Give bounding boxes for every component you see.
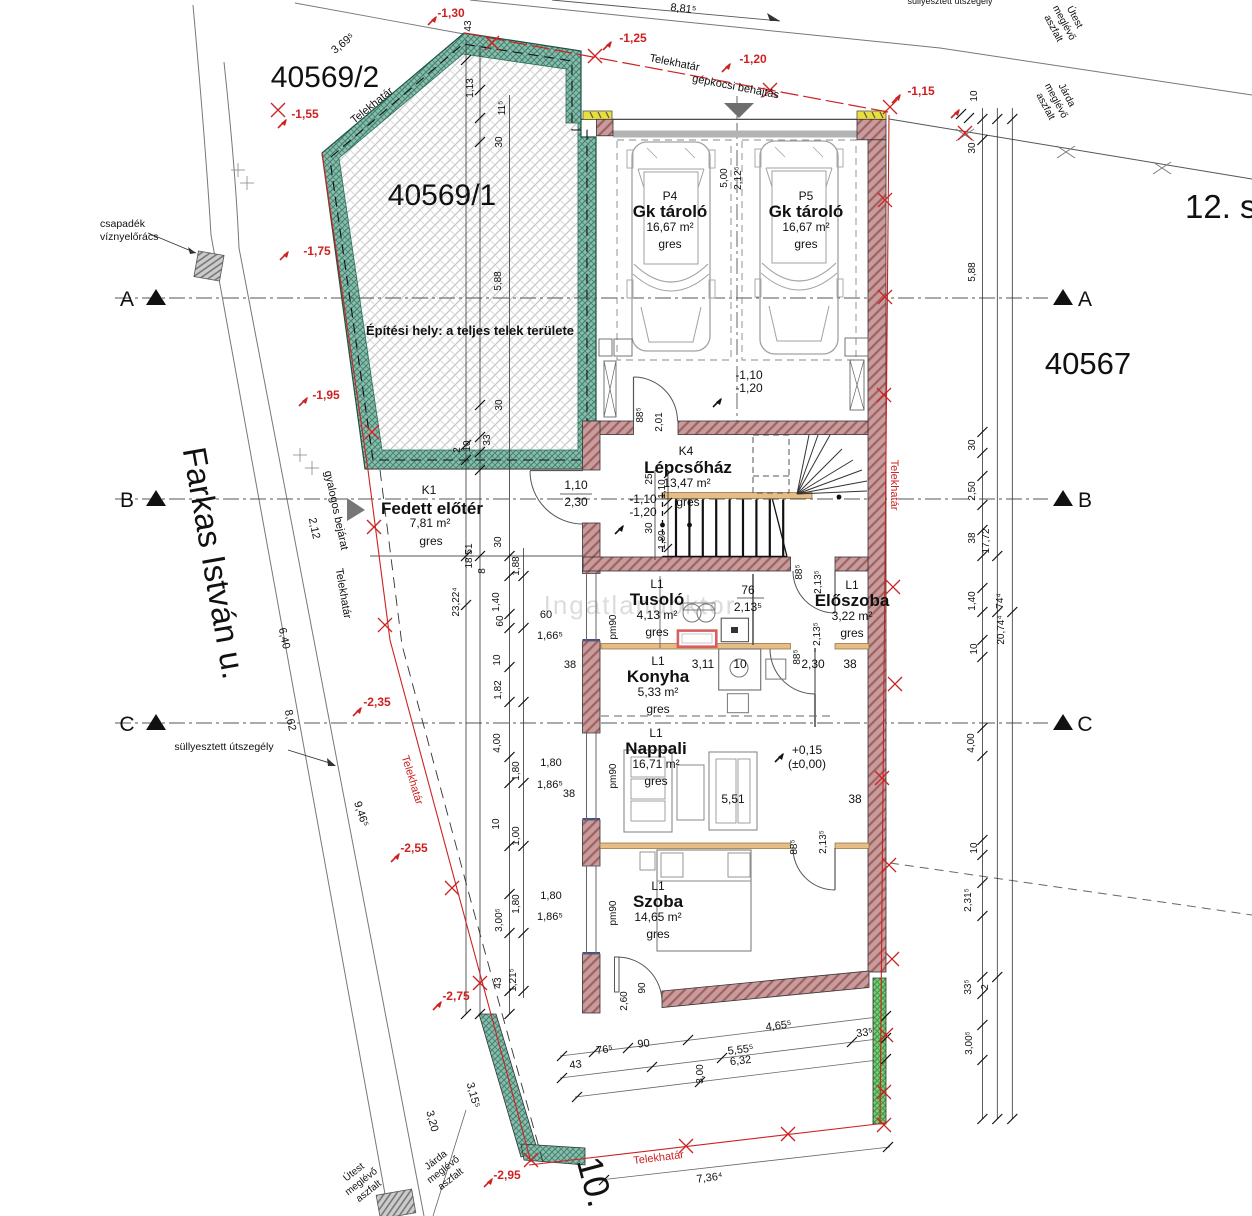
svg-text:pm90: pm90 bbox=[608, 763, 619, 788]
svg-text:1,80: 1,80 bbox=[657, 530, 668, 550]
svg-text:5,88: 5,88 bbox=[967, 262, 978, 282]
svg-text:11⁵: 11⁵ bbox=[497, 101, 508, 116]
svg-text:10: 10 bbox=[969, 90, 980, 102]
svg-text:2,60: 2,60 bbox=[619, 991, 630, 1011]
svg-text:76⁵: 76⁵ bbox=[596, 1043, 614, 1057]
svg-text:gres: gres bbox=[644, 774, 667, 788]
svg-text:60: 60 bbox=[495, 615, 506, 627]
svg-text:8: 8 bbox=[477, 568, 488, 574]
svg-text:gres: gres bbox=[840, 626, 863, 640]
svg-text:30: 30 bbox=[493, 536, 504, 548]
svg-text:88⁵: 88⁵ bbox=[794, 564, 805, 579]
svg-text:Gk tároló: Gk tároló bbox=[633, 202, 708, 221]
svg-text:B: B bbox=[1078, 489, 1092, 512]
svg-text:7,81 m²: 7,81 m² bbox=[410, 516, 451, 530]
svg-text:76: 76 bbox=[741, 583, 755, 597]
svg-text:10: 10 bbox=[969, 842, 980, 854]
svg-text:gres: gres bbox=[658, 237, 681, 251]
svg-text:-1,20: -1,20 bbox=[739, 52, 767, 66]
svg-text:38: 38 bbox=[843, 657, 857, 671]
svg-text:2,30: 2,30 bbox=[564, 495, 588, 509]
svg-text:-2,75: -2,75 bbox=[442, 989, 470, 1003]
svg-text:17,72: 17,72 bbox=[981, 528, 992, 553]
svg-text:1,80: 1,80 bbox=[540, 890, 561, 902]
svg-text:38: 38 bbox=[967, 532, 978, 544]
svg-text:2,50: 2,50 bbox=[967, 481, 978, 501]
svg-text:P5: P5 bbox=[799, 189, 814, 203]
svg-text:10: 10 bbox=[491, 818, 502, 830]
svg-text:B: B bbox=[120, 489, 134, 512]
svg-text:1,66⁵: 1,66⁵ bbox=[537, 630, 563, 642]
svg-text:1,80: 1,80 bbox=[511, 761, 522, 781]
svg-text:-1,15: -1,15 bbox=[907, 84, 935, 98]
svg-text:1,82: 1,82 bbox=[493, 680, 504, 700]
svg-text:-1,25: -1,25 bbox=[619, 31, 647, 45]
svg-text:38: 38 bbox=[848, 792, 862, 806]
svg-text:A: A bbox=[1078, 288, 1092, 311]
svg-text:1,86⁵: 1,86⁵ bbox=[537, 779, 563, 791]
svg-text:30: 30 bbox=[967, 142, 978, 154]
svg-text:38: 38 bbox=[564, 659, 576, 671]
svg-text:Lépcsőház: Lépcsőház bbox=[644, 458, 732, 477]
svg-text:1,80: 1,80 bbox=[540, 757, 561, 769]
svg-text:20,74⁴: 20,74⁴ bbox=[996, 615, 1007, 644]
svg-text:L1: L1 bbox=[845, 578, 859, 592]
svg-text:-1,75: -1,75 bbox=[303, 244, 331, 258]
svg-text:14,65 m²: 14,65 m² bbox=[634, 910, 681, 924]
svg-text:L1: L1 bbox=[650, 577, 664, 591]
svg-text:40569/2: 40569/2 bbox=[271, 61, 379, 94]
svg-text:4,00: 4,00 bbox=[492, 733, 503, 753]
svg-text:gres: gres bbox=[646, 702, 669, 716]
svg-text:88⁵: 88⁵ bbox=[789, 839, 800, 854]
svg-text:P4: P4 bbox=[663, 189, 678, 203]
svg-text:süllyesztett útszegély: süllyesztett útszegély bbox=[907, 0, 993, 6]
svg-text:5,51: 5,51 bbox=[721, 792, 745, 806]
svg-text:Tusoló: Tusoló bbox=[630, 590, 684, 609]
svg-text:gres: gres bbox=[419, 534, 442, 548]
svg-text:K1: K1 bbox=[422, 483, 437, 497]
svg-text:1,88: 1,88 bbox=[511, 556, 522, 576]
svg-text:L1: L1 bbox=[651, 879, 665, 893]
svg-text:38: 38 bbox=[563, 788, 575, 800]
svg-text:23,22⁴: 23,22⁴ bbox=[451, 587, 462, 616]
svg-text:2,30: 2,30 bbox=[801, 657, 825, 671]
svg-text:3,22 m²: 3,22 m² bbox=[832, 609, 873, 623]
svg-text:13,47 m²: 13,47 m² bbox=[663, 476, 710, 490]
svg-text:3,00⁵: 3,00⁵ bbox=[494, 908, 505, 932]
svg-text:-1,10: -1,10 bbox=[629, 492, 657, 506]
svg-text:Telekhatár: Telekhatár bbox=[888, 460, 900, 511]
svg-text:L1: L1 bbox=[651, 654, 665, 668]
svg-text:30: 30 bbox=[494, 399, 505, 411]
svg-text:1,21⁵: 1,21⁵ bbox=[508, 968, 519, 992]
svg-text:1,40: 1,40 bbox=[491, 592, 502, 612]
svg-text:10: 10 bbox=[492, 654, 503, 666]
svg-text:88⁵: 88⁵ bbox=[792, 649, 803, 664]
svg-text:K4: K4 bbox=[679, 444, 694, 458]
svg-text:1,86⁵: 1,86⁵ bbox=[537, 911, 563, 923]
svg-text:pm90: pm90 bbox=[608, 900, 619, 925]
svg-text:-1,55: -1,55 bbox=[291, 107, 319, 121]
svg-text:30: 30 bbox=[494, 136, 505, 148]
svg-text:3,11: 3,11 bbox=[692, 657, 715, 671]
svg-text:gres: gres bbox=[645, 625, 668, 639]
svg-text:88⁵: 88⁵ bbox=[635, 407, 646, 422]
svg-text:C: C bbox=[119, 713, 134, 736]
svg-text:1,40: 1,40 bbox=[967, 591, 978, 611]
svg-text:74⁴: 74⁴ bbox=[995, 593, 1006, 608]
svg-text:40569/1: 40569/1 bbox=[388, 179, 496, 212]
svg-text:Építési hely: a teljes telek t: Építési hely: a teljes telek területe bbox=[366, 323, 574, 338]
svg-text:Konyha: Konyha bbox=[627, 667, 690, 686]
svg-text:1,13: 1,13 bbox=[465, 78, 476, 98]
svg-text:-1,95: -1,95 bbox=[312, 388, 340, 402]
svg-text:1,10: 1,10 bbox=[564, 478, 588, 492]
svg-text:16,67 m²: 16,67 m² bbox=[646, 220, 693, 234]
svg-text:5,33 m²: 5,33 m² bbox=[638, 685, 679, 699]
svg-text:90: 90 bbox=[637, 982, 648, 994]
svg-text:Gk tároló: Gk tároló bbox=[769, 202, 844, 221]
svg-text:Előszoba: Előszoba bbox=[815, 591, 890, 610]
svg-text:2,31⁵: 2,31⁵ bbox=[963, 888, 974, 912]
svg-text:Szoba: Szoba bbox=[633, 892, 684, 911]
svg-text:pm90: pm90 bbox=[608, 614, 619, 639]
svg-text:33: 33 bbox=[482, 434, 493, 446]
svg-text:25: 25 bbox=[644, 473, 655, 485]
svg-text:-2,95: -2,95 bbox=[493, 1168, 521, 1182]
svg-text:gres: gres bbox=[676, 495, 699, 509]
svg-text:-1,30: -1,30 bbox=[437, 6, 465, 20]
svg-text:(±0,00): (±0,00) bbox=[788, 757, 826, 771]
svg-text:víznyelőrács: víznyelőrács bbox=[100, 231, 158, 243]
svg-text:10: 10 bbox=[969, 643, 980, 655]
svg-text:2,13⁵: 2,13⁵ bbox=[734, 600, 762, 614]
svg-text:90: 90 bbox=[637, 1037, 651, 1050]
svg-text:-2,55: -2,55 bbox=[400, 841, 428, 855]
svg-text:33⁵: 33⁵ bbox=[856, 1026, 874, 1040]
svg-text:43: 43 bbox=[463, 20, 474, 32]
svg-text:4,00: 4,00 bbox=[966, 733, 977, 753]
svg-text:16,67 m²: 16,67 m² bbox=[782, 220, 829, 234]
svg-text:1,00: 1,00 bbox=[511, 826, 522, 846]
svg-text:10: 10 bbox=[462, 440, 473, 452]
svg-text:10: 10 bbox=[733, 657, 747, 671]
svg-text:2,13⁵: 2,13⁵ bbox=[812, 622, 823, 646]
svg-text:+0,15: +0,15 bbox=[792, 743, 823, 757]
svg-text:2,13⁵: 2,13⁵ bbox=[818, 830, 829, 854]
svg-text:2,12⁵: 2,12⁵ bbox=[733, 166, 744, 190]
svg-text:-1,20: -1,20 bbox=[629, 505, 657, 519]
svg-text:30: 30 bbox=[967, 439, 978, 451]
svg-text:-1,10: -1,10 bbox=[735, 368, 763, 382]
svg-text:3,00⁵: 3,00⁵ bbox=[964, 1031, 975, 1055]
svg-text:gres: gres bbox=[646, 927, 669, 941]
svg-text:2: 2 bbox=[980, 984, 991, 990]
svg-text:16,71 m²: 16,71 m² bbox=[632, 757, 679, 771]
svg-text:süllyesztett útszegély: süllyesztett útszegély bbox=[174, 741, 274, 753]
svg-text:csapadék: csapadék bbox=[100, 218, 146, 230]
svg-text:3,00: 3,00 bbox=[695, 1064, 706, 1084]
svg-text:33⁵: 33⁵ bbox=[963, 979, 974, 994]
svg-text:-2,35: -2,35 bbox=[363, 695, 391, 709]
svg-text:5,88: 5,88 bbox=[493, 271, 504, 291]
svg-text:4,13 m²: 4,13 m² bbox=[637, 608, 678, 622]
svg-text:2,13⁵: 2,13⁵ bbox=[813, 570, 824, 594]
svg-text:40567: 40567 bbox=[1045, 346, 1131, 381]
svg-text:Nappali: Nappali bbox=[625, 739, 686, 758]
svg-text:30: 30 bbox=[644, 522, 655, 534]
svg-text:43: 43 bbox=[569, 1058, 583, 1071]
svg-text:60: 60 bbox=[540, 609, 552, 621]
svg-text:1,10: 1,10 bbox=[657, 479, 668, 499]
svg-text:5,00: 5,00 bbox=[719, 168, 730, 188]
svg-text:C: C bbox=[1077, 713, 1092, 736]
svg-text:2: 2 bbox=[452, 447, 463, 453]
svg-text:-1,20: -1,20 bbox=[735, 381, 763, 395]
svg-text:gres: gres bbox=[794, 237, 817, 251]
svg-text:A: A bbox=[120, 288, 134, 311]
svg-text:2,01: 2,01 bbox=[654, 412, 665, 432]
svg-text:L1: L1 bbox=[649, 726, 663, 740]
svg-text:43: 43 bbox=[493, 977, 504, 989]
svg-text:1,80: 1,80 bbox=[511, 894, 522, 914]
svg-text:18,51: 18,51 bbox=[464, 543, 475, 568]
svg-text:12. s: 12. s bbox=[1185, 188, 1252, 225]
